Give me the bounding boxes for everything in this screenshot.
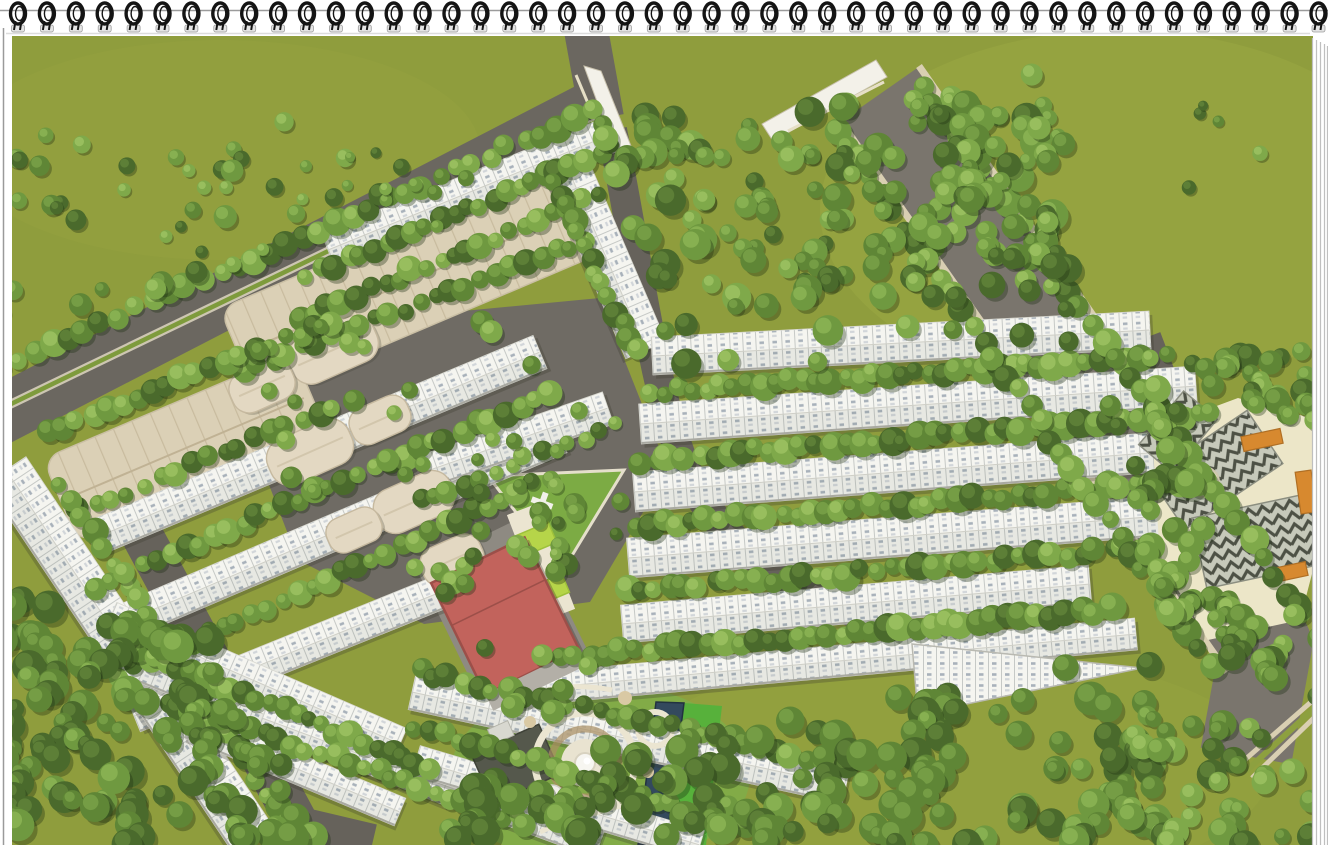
tree-highlight [1004,249,1015,260]
tree-highlight [301,161,307,167]
tree-highlight [1039,811,1055,827]
tree-highlight [1256,550,1266,560]
tree-highlight [592,188,600,196]
tree-highlight [65,792,75,802]
tree-highlight [1161,347,1170,356]
tree-highlight [137,557,145,565]
tree-highlight [654,772,665,783]
tree-highlight [747,439,756,448]
park-pad [618,691,632,705]
tree-highlight [181,768,197,784]
tree-highlight [1180,552,1192,564]
tree-highlight [694,447,704,457]
tree-highlight [184,165,191,172]
tree-highlight [422,722,433,733]
tree-highlight [1283,408,1293,418]
tree-highlight [556,763,570,777]
tree-highlight [432,208,444,220]
tree [0,303,12,324]
tree-highlight [547,118,562,133]
tree-highlight [1243,528,1258,543]
tree-highlight [1159,600,1174,615]
tree-highlight [535,442,545,452]
tree-highlight [944,94,953,103]
tree-highlight [987,138,998,149]
tree-highlight [1073,479,1085,491]
tree-highlight [610,417,617,424]
tree-highlight [43,746,59,762]
tree-highlight [372,760,383,771]
tree-highlight [684,212,694,222]
tree-highlight [686,813,698,825]
tree-highlight [668,516,680,528]
tree-highlight [532,128,544,140]
tree-highlight [852,433,866,447]
tree-highlight [66,412,76,422]
tree-highlight [351,247,361,257]
tree-highlight [1025,542,1040,557]
park-pad [524,716,536,728]
tree-highlight [829,211,840,222]
tree-highlight [814,747,826,759]
tree-highlight [996,418,1007,429]
tree-highlight [329,291,343,305]
tree-highlight [205,664,216,675]
tree-highlight [1051,733,1063,745]
tree-highlight [911,214,927,230]
tree-highlight [864,181,876,193]
tree-highlight [408,779,421,792]
tree-highlight [201,358,212,369]
tree-highlight [5,282,15,292]
fountain-monument-top [584,758,591,765]
tree-highlight [376,546,388,558]
tree-highlight [565,209,579,223]
tree-highlight [227,710,238,721]
tree-highlight [39,421,51,433]
tree-highlight [325,725,336,736]
tree-highlight [834,565,849,580]
tree-highlight [626,641,636,651]
tree-highlight [113,619,128,634]
tree-shadow [1311,631,1328,654]
tree-highlight [501,785,518,802]
tree [0,359,13,379]
tree-highlight [1293,381,1307,395]
tree-highlight [1052,445,1063,456]
tree-highlight [1203,655,1217,669]
tree-highlight [640,516,654,530]
tree-highlight [927,225,941,239]
tree-highlight [762,634,772,644]
tree-highlight [161,231,168,238]
tree-highlight [291,706,301,716]
tree-highlight [832,95,847,110]
tree-highlight [630,454,642,466]
tree-highlight [697,191,708,202]
tree-highlight [112,723,122,733]
tree-highlight [462,156,472,166]
tree-highlight [756,295,769,308]
tree-highlight [186,203,195,212]
tree-highlight [994,491,1005,502]
tree-highlight [1302,395,1313,406]
tree-highlight [928,725,943,740]
tree-highlight [520,132,530,142]
tree-highlight [409,436,422,449]
tree-highlight [779,369,791,381]
tree-highlight [396,185,407,196]
tree-highlight [1137,543,1150,556]
tree-highlight [85,520,99,534]
tree-highlight [98,715,108,725]
tree-highlight [773,132,784,143]
tree-highlight [932,489,943,500]
tree-highlight [1216,494,1230,508]
tree-highlight [1039,152,1051,164]
tree-highlight [1239,346,1252,359]
tree-highlight [866,135,882,151]
tree-highlight [595,792,607,804]
tree-highlight [791,628,803,640]
tree-highlight [498,181,510,193]
tree-highlight [1023,396,1034,407]
tree-highlight [139,480,147,488]
tree-highlight [1020,281,1032,293]
tree-highlight [495,136,506,147]
tree-highlight [129,588,141,600]
tree-highlight [1039,213,1050,224]
tree-highlight [560,156,572,168]
tree-highlight [618,328,631,341]
tree-highlight [712,512,721,521]
tree-highlight [327,190,337,200]
tree-highlight [829,501,841,513]
tree-highlight [592,423,601,432]
tree-highlight [314,747,323,756]
tree-highlight [747,174,756,183]
tree-highlight [952,115,965,128]
tree-highlight [234,827,246,839]
tree-highlight [1011,380,1021,390]
tree-highlight [933,271,943,281]
tree-highlight [908,554,923,569]
tree-highlight [992,108,1002,118]
tree-highlight [953,424,964,435]
tree-highlight [1085,493,1099,507]
tree-highlight [886,182,898,194]
tree-highlight [876,203,885,212]
tree-highlight [743,249,757,263]
tree-highlight [605,304,619,318]
tree-highlight [295,329,305,339]
tree-highlight [472,819,489,836]
tree-highlight [1102,397,1113,408]
tree-highlight [149,552,160,563]
tree-highlight [213,700,227,714]
tree-highlight [623,217,636,230]
tree-highlight [1111,419,1120,428]
tree-highlight [779,709,794,724]
spiral-notebook-page [0,0,1328,845]
tree-highlight [1139,654,1153,668]
tree-highlight [428,489,436,497]
tree-highlight [500,678,513,691]
tree-canopy [0,359,11,377]
tree-highlight [605,163,619,177]
tree-highlight [440,281,452,293]
tree-highlight [234,682,246,694]
tree-highlight [800,752,810,762]
tree-highlight [1306,412,1316,422]
tree-shadow [0,307,12,325]
tree-highlight [381,276,390,285]
tree-highlight [157,378,168,389]
tree-highlight [291,309,304,322]
tree-highlight [235,152,244,161]
tree-highlight [734,570,744,580]
tree-highlight [51,202,58,209]
tree-highlight [488,265,500,277]
tree-highlight [669,149,678,158]
tree-highlight [969,553,980,564]
tree-highlight [80,667,92,679]
tree-highlight [1159,438,1174,453]
tree-highlight [1244,366,1253,375]
tree-highlight [821,274,831,284]
tree-highlight [564,106,579,121]
tree-highlight [344,207,356,219]
tree-highlight [11,354,20,363]
tree-highlight [1285,606,1297,618]
tree-highlight [334,562,344,572]
tree-highlight [978,239,988,249]
tree-highlight [934,107,943,116]
tree-highlight [4,784,16,796]
tree-highlight [103,574,112,583]
tree-highlight [719,351,730,362]
tree-highlight [981,274,995,288]
tree-highlight [1027,605,1039,617]
tree-highlight [1010,812,1021,823]
tree-highlight [725,380,734,389]
tree-highlight [299,270,307,278]
tree-highlight [672,576,684,588]
tree-highlight [909,254,919,264]
tree-highlight [801,502,814,515]
tree-highlight [595,127,608,140]
tree-highlight [302,712,310,720]
tree-highlight [501,257,512,268]
tree-highlight [267,179,276,188]
tree-highlight [546,175,555,184]
tree-highlight [937,425,946,434]
tree-highlight [115,396,126,407]
tree-highlight [399,305,407,313]
tree-highlight [968,419,982,433]
tree-highlight [1043,255,1057,269]
tree-shadow [0,362,13,379]
tree-highlight [671,378,681,388]
site-plan-image-layer [0,30,1328,845]
tree-highlight [983,491,993,501]
tree-highlight [1041,355,1056,370]
tree-highlight [155,787,166,798]
tree-highlight [1178,471,1194,487]
tree-highlight [737,196,749,208]
tree-highlight [365,241,378,254]
tree-highlight [436,665,449,678]
tree-highlight [827,120,841,134]
tree-highlight [371,741,381,751]
tree-highlight [118,813,132,827]
tree-highlight [547,804,563,820]
tree-highlight [229,797,246,814]
tree-highlight [195,740,208,753]
tree-highlight [758,202,770,214]
tree-highlight [275,233,288,246]
tree-highlight [546,204,555,213]
tree-highlight [878,744,895,761]
tree-highlight [216,265,225,274]
tree-highlight [822,434,837,449]
tree-highlight [243,251,257,265]
tree-highlight [1096,331,1111,346]
tree-highlight [701,635,713,647]
tree-highlight [994,174,1003,183]
tree-highlight [583,772,595,784]
tree-highlight [982,348,995,361]
tree-highlight [491,467,498,474]
tree-highlight [155,719,170,734]
tree-highlight [308,581,316,589]
tree-highlight [753,506,767,520]
tree-highlight [796,253,806,263]
tree-highlight [274,493,287,506]
tree-highlight [808,183,817,192]
tree-highlight [169,150,178,159]
tree-highlight [1143,777,1155,789]
tree-highlight [677,315,689,327]
tree-highlight [110,310,121,321]
tree-highlight [71,295,83,307]
tree-highlight [981,607,996,622]
tree-highlight [852,560,862,570]
tree-highlight [437,483,449,495]
tree-highlight [75,137,84,146]
tree-highlight [101,764,118,781]
tree-highlight [1030,118,1042,130]
tree-highlight [1014,117,1027,130]
tree-highlight [346,288,359,301]
tree-highlight [1018,355,1027,364]
tree-highlight [430,787,438,795]
tree-highlight [960,188,974,202]
tree-highlight [1013,485,1024,496]
tree-highlight [83,795,99,811]
tree-highlight [258,244,265,251]
tree-highlight [1164,519,1177,532]
tree-highlight [396,771,406,781]
tree-highlight [249,757,260,768]
tree-highlight [666,170,677,181]
tree-highlight [755,830,768,843]
tree-highlight [1083,539,1096,552]
tree-highlight [351,468,360,477]
tree-highlight [795,770,805,780]
tree-highlight [35,593,52,610]
tree-highlight [746,630,758,642]
tree-highlight [599,288,609,298]
tree-highlight [995,546,1008,559]
tree-highlight [365,555,373,563]
tree-highlight [524,474,533,483]
tree-highlight [633,711,645,723]
tree-highlight [990,249,999,258]
tree-highlight [665,716,674,725]
tree-highlight [850,742,867,759]
tree-highlight [704,276,714,286]
tree-highlight [364,278,374,288]
tree-highlight [845,500,855,510]
tree-highlight [395,536,406,547]
tree-highlight [131,391,141,401]
tree-highlight [27,634,38,645]
tree-highlight [1134,692,1147,705]
tree-highlight [27,342,39,354]
tree-highlight [854,773,868,787]
tree-highlight [496,741,509,754]
tree-highlight [340,755,353,768]
tree-highlight [271,781,282,792]
tree-highlight [1209,611,1218,620]
tree-highlight [629,340,640,351]
tree-highlight [753,375,768,390]
tree-highlight [569,224,578,233]
tree-highlight [683,232,699,248]
tree-highlight [766,227,775,236]
tree-highlight [480,736,492,748]
tree-highlight [978,223,989,234]
tree-highlight [995,367,1009,381]
tree-highlight [358,761,366,769]
tree-highlight [315,717,323,725]
tree-highlight [558,196,567,205]
tree-highlight [735,240,745,250]
tree-highlight [946,360,958,372]
tree-highlight [272,755,284,767]
tree-highlight [697,148,707,158]
tree-highlight [8,701,18,711]
tree-highlight [694,507,707,520]
tree-highlight [1008,723,1022,737]
tree-highlight [1019,196,1031,208]
tree-highlight [52,418,65,431]
tree-highlight [932,804,945,817]
tree-highlight [1054,602,1068,616]
tree-highlight [714,631,728,645]
tree-highlight [1180,533,1194,547]
tree-highlight [721,226,730,235]
tree-highlight [656,825,670,839]
tree-highlight [1266,389,1280,403]
tree-highlight [646,583,655,592]
tree-highlight [837,628,847,638]
tree-highlight [808,722,821,735]
tree-highlight [823,722,840,739]
tree-highlight [1129,347,1143,361]
tree-highlight [607,709,617,719]
